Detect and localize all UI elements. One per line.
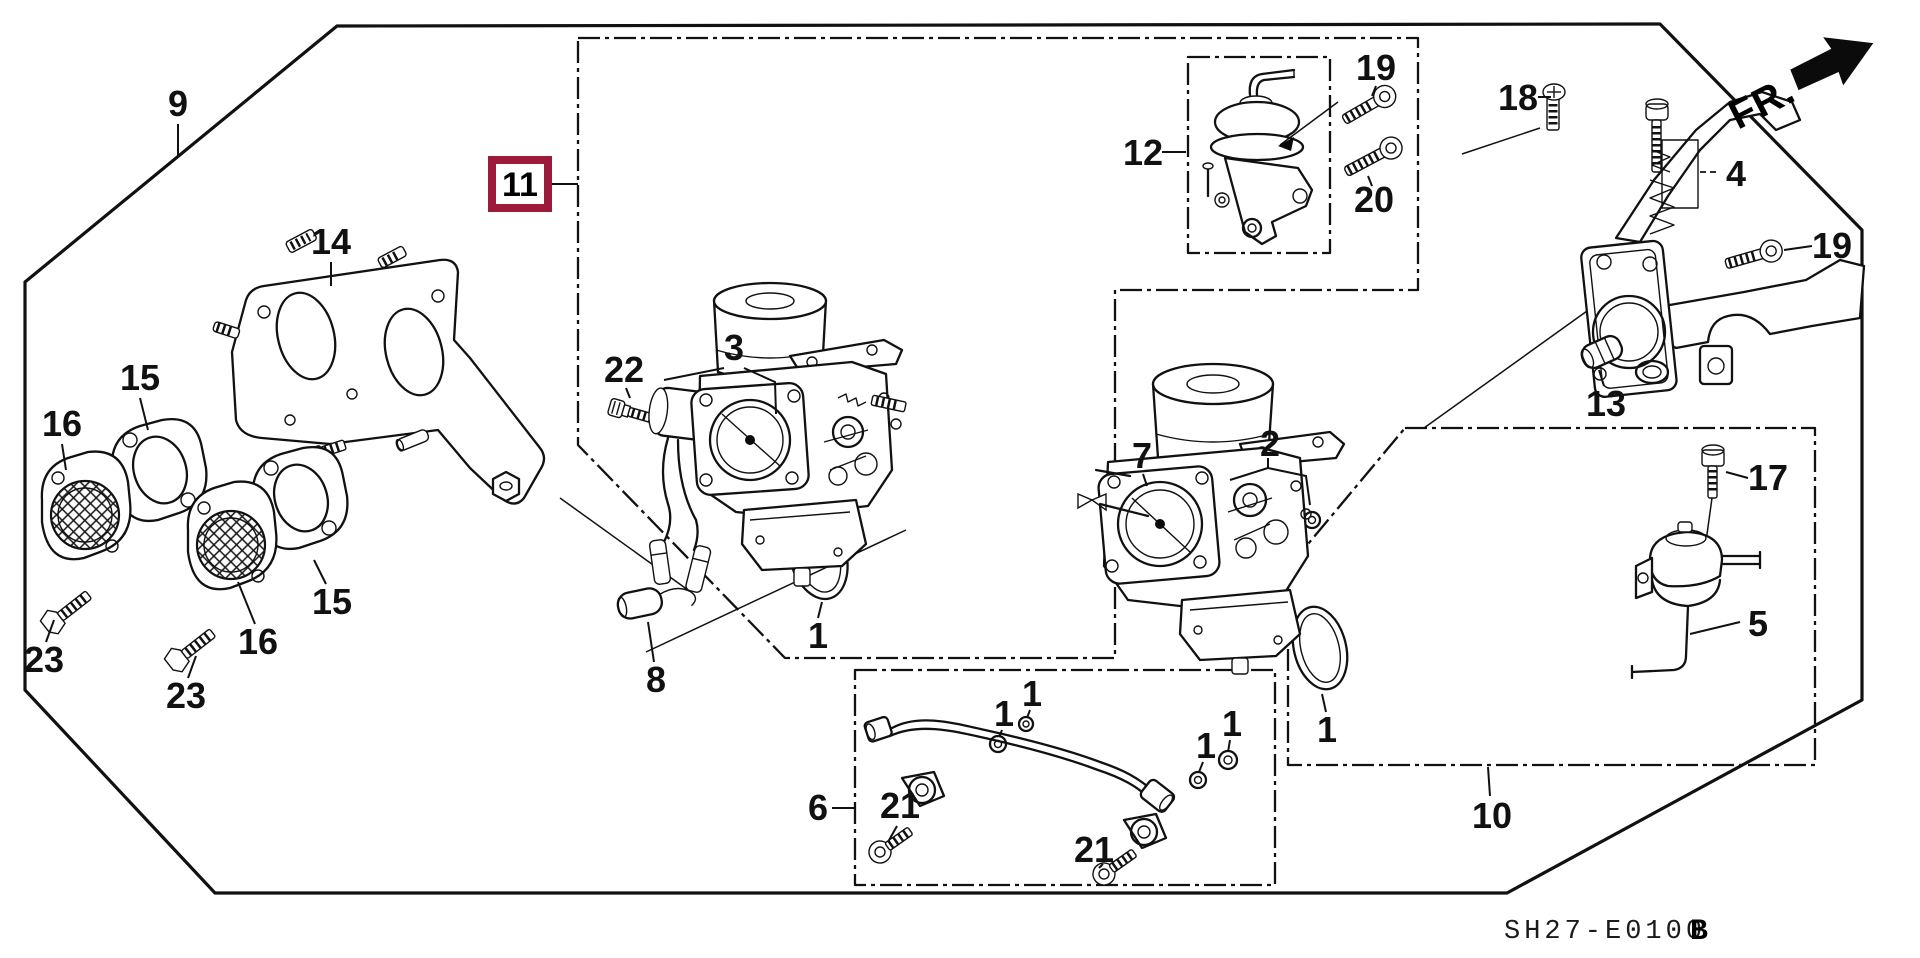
part-label-1-pipe-b[interactable]: 1: [1022, 673, 1042, 714]
tube-part-8-drawing: [616, 579, 697, 621]
bolt-19-bracket-drawing: [1723, 237, 1785, 274]
screw-18-drawing: [1543, 84, 1565, 130]
highlighted-part-11[interactable]: 11: [492, 160, 548, 208]
part-label-15-top[interactable]: 15: [120, 357, 160, 398]
egr-valve-drawing: [1203, 70, 1338, 244]
front-direction-arrow-icon: [1782, 18, 1884, 104]
part-label-16-top[interactable]: 16: [42, 403, 82, 444]
part-label-4[interactable]: 4: [1726, 153, 1746, 194]
screw-22-drawing: [607, 398, 654, 426]
part-label-1-pipe-a[interactable]: 1: [994, 693, 1014, 734]
part-label-13[interactable]: 13: [1586, 383, 1626, 424]
bolt-19-box-drawing: [1339, 81, 1400, 129]
part-label-15-bottom[interactable]: 15: [312, 581, 352, 622]
screen-flange-bottom-drawing: [188, 482, 277, 590]
part-label-1-right[interactable]: 1: [1317, 709, 1337, 750]
carburetor-exploded-diagram: 9 14 15 16 16 23 23 15 11 22 3 8 1 12 19…: [0, 0, 1920, 958]
main-carburetor-drawing: [690, 283, 906, 586]
part-label-6[interactable]: 6: [808, 787, 828, 828]
part-label-10[interactable]: 10: [1472, 795, 1512, 836]
flange-bolt-left-drawing: [38, 585, 96, 638]
diagram-revision: B: [1690, 915, 1708, 949]
part-label-8[interactable]: 8: [646, 659, 666, 700]
part-label-2[interactable]: 2: [1260, 423, 1280, 464]
parts-diagram-page: 9 14 15 16 16 23 23 15 11 22 3 8 1 12 19…: [0, 0, 1920, 958]
front-direction-label: FR.: [1722, 68, 1802, 138]
part-label-22[interactable]: 22: [604, 349, 644, 390]
part-label-21-left[interactable]: 21: [880, 785, 920, 826]
part-label-23-right[interactable]: 23: [166, 675, 206, 716]
part-label-18[interactable]: 18: [1498, 77, 1538, 118]
insulator-plate-drawing: [212, 229, 544, 504]
part-label-14[interactable]: 14: [311, 221, 351, 262]
part-label-23-left[interactable]: 23: [24, 639, 64, 680]
part-label-11[interactable]: 11: [502, 166, 538, 204]
screen-flange-top-drawing: [42, 452, 131, 560]
bolt-20-drawing: [1341, 133, 1406, 182]
part-label-20[interactable]: 20: [1354, 179, 1394, 220]
part-label-17[interactable]: 17: [1748, 457, 1788, 498]
right-carburetor-drawing: [1078, 364, 1344, 674]
part-label-21-right[interactable]: 21: [1074, 829, 1114, 870]
pull-off-diaphragm-5-drawing: [1632, 522, 1760, 678]
diagram-code-text: SH27-E0100: [1504, 917, 1706, 947]
bracket-assembly-drawing: [1424, 92, 1864, 428]
part-label-19-box[interactable]: 19: [1356, 47, 1396, 88]
front-direction-indicator: FR.: [1718, 18, 1885, 138]
part-label-19-bracket[interactable]: 19: [1812, 225, 1852, 266]
diagram-code: SH27-E0100 B: [1504, 915, 1708, 949]
part-label-3[interactable]: 3: [724, 327, 744, 368]
part-label-12[interactable]: 12: [1123, 132, 1163, 173]
part-label-1-pipe-d[interactable]: 1: [1222, 703, 1242, 744]
part-label-5[interactable]: 5: [1748, 603, 1768, 644]
part-label-7[interactable]: 7: [1132, 435, 1152, 476]
part-label-1-pipe-c[interactable]: 1: [1196, 725, 1216, 766]
part-label-9[interactable]: 9: [168, 83, 188, 124]
part-label-16-bottom[interactable]: 16: [238, 621, 278, 662]
part-label-1-main[interactable]: 1: [808, 615, 828, 656]
